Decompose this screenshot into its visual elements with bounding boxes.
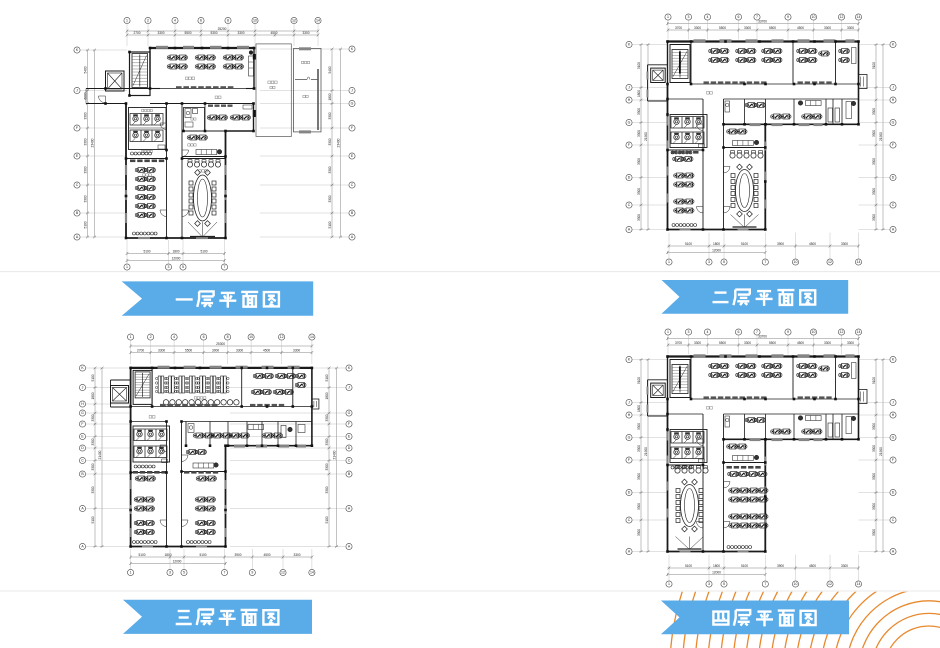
svg-text:12000: 12000 — [172, 257, 181, 261]
svg-text:9: 9 — [251, 571, 253, 575]
svg-text:3900: 3900 — [777, 564, 784, 568]
svg-text:10: 10 — [812, 330, 816, 334]
svg-text:3300: 3300 — [84, 138, 88, 145]
svg-text:F: F — [76, 126, 78, 130]
svg-text:1: 1 — [667, 330, 669, 334]
svg-text:3300: 3300 — [637, 503, 641, 510]
svg-text:5500: 5500 — [184, 31, 191, 35]
svg-text:7: 7 — [764, 582, 766, 586]
svg-text:3300: 3300 — [158, 349, 165, 353]
svg-text:3300: 3300 — [872, 158, 876, 165]
svg-text:3300: 3300 — [872, 423, 876, 430]
svg-text:5100: 5100 — [325, 516, 329, 523]
svg-text:1800: 1800 — [91, 392, 95, 399]
svg-text:5100: 5100 — [741, 564, 748, 568]
svg-text:J: J — [82, 386, 84, 390]
svg-text:3: 3 — [688, 15, 690, 19]
svg-text:3: 3 — [708, 260, 710, 264]
svg-text:F: F — [628, 458, 630, 462]
svg-text:6: 6 — [738, 330, 740, 334]
svg-text:21400: 21400 — [98, 450, 102, 459]
svg-text:5500: 5500 — [719, 26, 726, 30]
svg-text:3700: 3700 — [675, 26, 682, 30]
svg-text:1: 1 — [126, 265, 128, 269]
svg-text:25200: 25200 — [218, 27, 227, 31]
svg-text:3300: 3300 — [694, 26, 701, 30]
svg-text:5100: 5100 — [741, 242, 748, 246]
svg-text:3300: 3300 — [637, 158, 641, 165]
svg-text:10: 10 — [812, 15, 816, 19]
svg-text:F: F — [892, 458, 894, 462]
svg-text:J: J — [628, 86, 630, 90]
svg-text:25300: 25300 — [216, 342, 225, 346]
svg-text:J: J — [348, 386, 350, 390]
svg-text:5300: 5300 — [210, 31, 217, 35]
svg-text:23400: 23400 — [337, 138, 341, 147]
svg-text:12: 12 — [281, 571, 285, 575]
svg-text:21900: 21900 — [879, 447, 883, 456]
svg-text:21900: 21900 — [644, 447, 648, 456]
svg-text:4: 4 — [707, 330, 709, 334]
svg-text:3300: 3300 — [328, 195, 332, 202]
svg-text:1: 1 — [667, 15, 669, 19]
svg-text:12: 12 — [828, 260, 832, 264]
svg-text:3: 3 — [169, 571, 171, 575]
svg-text:4: 4 — [173, 335, 175, 339]
svg-text:3900: 3900 — [234, 553, 241, 557]
svg-text:7: 7 — [756, 330, 758, 334]
svg-text:3000: 3000 — [212, 349, 219, 353]
svg-text:3700: 3700 — [675, 341, 682, 345]
svg-text:4500: 4500 — [809, 564, 816, 568]
svg-text:3300: 3300 — [302, 31, 309, 35]
svg-text:3300: 3300 — [637, 445, 641, 452]
svg-text:3300: 3300 — [293, 553, 300, 557]
svg-text:3300: 3300 — [325, 463, 329, 470]
svg-text:5400: 5400 — [84, 66, 88, 73]
svg-text:3300: 3300 — [872, 503, 876, 510]
svg-text:4500: 4500 — [797, 341, 804, 345]
svg-text:5100: 5100 — [685, 564, 692, 568]
svg-text:1800: 1800 — [713, 242, 720, 246]
svg-text:14: 14 — [857, 15, 861, 19]
svg-text:3300: 3300 — [91, 486, 95, 493]
svg-text:21900: 21900 — [644, 132, 648, 141]
svg-text:3300: 3300 — [824, 26, 831, 30]
svg-text:4: 4 — [707, 15, 709, 19]
svg-text:12: 12 — [840, 15, 844, 19]
svg-text:21900: 21900 — [879, 132, 883, 141]
svg-text:3300: 3300 — [824, 341, 831, 345]
svg-text:1800: 1800 — [328, 93, 332, 100]
svg-text:21400: 21400 — [333, 450, 337, 459]
svg-text:G: G — [628, 121, 631, 125]
svg-text:5100: 5100 — [91, 516, 95, 523]
svg-text:33700: 33700 — [758, 335, 767, 339]
svg-text:3300: 3300 — [325, 414, 329, 421]
svg-text:5100: 5100 — [872, 62, 876, 69]
svg-text:3300: 3300 — [157, 31, 164, 35]
svg-text:3300: 3300 — [84, 112, 88, 119]
svg-text:33700: 33700 — [758, 20, 767, 24]
svg-text:3300: 3300 — [637, 214, 641, 221]
svg-text:5100: 5100 — [138, 553, 145, 557]
svg-text:3300: 3300 — [91, 463, 95, 470]
svg-text:5500: 5500 — [185, 349, 192, 353]
svg-text:3300: 3300 — [872, 108, 876, 115]
svg-text:14: 14 — [857, 582, 861, 586]
svg-text:3300: 3300 — [293, 349, 300, 353]
svg-text:5100: 5100 — [685, 242, 692, 246]
svg-text:5: 5 — [183, 571, 185, 575]
svg-text:3300: 3300 — [872, 130, 876, 137]
svg-text:3300: 3300 — [637, 529, 641, 536]
svg-text:F: F — [351, 126, 353, 130]
svg-text:4500: 4500 — [797, 26, 804, 30]
svg-text:14: 14 — [857, 330, 861, 334]
svg-text:F: F — [892, 143, 894, 147]
svg-text:G: G — [892, 121, 895, 125]
svg-text:14: 14 — [857, 260, 861, 264]
svg-text:1800: 1800 — [637, 90, 641, 97]
svg-text:3300: 3300 — [872, 529, 876, 536]
svg-text:3300: 3300 — [637, 108, 641, 115]
svg-text:3300: 3300 — [694, 341, 701, 345]
svg-text:3300: 3300 — [637, 188, 641, 195]
svg-text:3300: 3300 — [744, 26, 751, 30]
svg-text:10: 10 — [794, 260, 798, 264]
svg-text:10: 10 — [794, 582, 798, 586]
svg-text:9: 9 — [787, 15, 789, 19]
svg-text:J: J — [351, 89, 353, 93]
svg-text:5100: 5100 — [143, 250, 150, 254]
svg-text:3300: 3300 — [328, 138, 332, 145]
svg-text:3300: 3300 — [637, 130, 641, 137]
svg-text:1: 1 — [668, 582, 670, 586]
svg-text:J: J — [628, 401, 630, 405]
svg-text:1800: 1800 — [172, 250, 179, 254]
svg-text:12000: 12000 — [712, 249, 721, 253]
svg-text:3300: 3300 — [637, 423, 641, 430]
svg-text:14: 14 — [310, 335, 314, 339]
svg-text:12: 12 — [828, 582, 832, 586]
svg-text:6000: 6000 — [84, 92, 88, 99]
svg-text:2700: 2700 — [133, 31, 140, 35]
svg-text:4500: 4500 — [263, 553, 270, 557]
svg-text:J: J — [892, 86, 894, 90]
svg-text:F: F — [628, 143, 630, 147]
svg-text:F: F — [348, 422, 350, 426]
svg-text:5100: 5100 — [325, 374, 329, 381]
svg-text:5400: 5400 — [328, 66, 332, 73]
svg-text:3300: 3300 — [84, 195, 88, 202]
svg-text:2: 2 — [150, 335, 152, 339]
svg-text:12: 12 — [840, 330, 844, 334]
svg-text:5: 5 — [723, 582, 725, 586]
svg-text:8: 8 — [227, 335, 229, 339]
svg-text:3300: 3300 — [91, 414, 95, 421]
svg-text:5: 5 — [723, 260, 725, 264]
svg-text:J: J — [76, 89, 78, 93]
svg-text:3300: 3300 — [841, 242, 848, 246]
svg-text:7: 7 — [756, 15, 758, 19]
svg-text:1: 1 — [130, 335, 132, 339]
svg-text:3300: 3300 — [872, 188, 876, 195]
svg-text:1800: 1800 — [164, 553, 171, 557]
svg-text:3300: 3300 — [237, 31, 244, 35]
svg-text:23400: 23400 — [91, 138, 95, 147]
svg-text:5100: 5100 — [91, 374, 95, 381]
svg-text:9: 9 — [787, 330, 789, 334]
svg-text:3300: 3300 — [91, 438, 95, 445]
svg-text:3900: 3900 — [777, 242, 784, 246]
svg-text:5100: 5100 — [637, 62, 641, 69]
svg-text:5100: 5100 — [199, 553, 206, 557]
svg-text:5500: 5500 — [719, 341, 726, 345]
svg-text:5500: 5500 — [769, 26, 776, 30]
svg-text:1: 1 — [130, 571, 132, 575]
svg-text:J: J — [892, 401, 894, 405]
svg-text:3300: 3300 — [325, 486, 329, 493]
svg-text:5100: 5100 — [200, 250, 207, 254]
svg-text:3300: 3300 — [744, 341, 751, 345]
svg-text:10: 10 — [249, 335, 253, 339]
svg-text:14: 14 — [310, 571, 314, 575]
svg-text:3: 3 — [688, 330, 690, 334]
svg-text:4500: 4500 — [270, 31, 277, 35]
svg-text:12000: 12000 — [712, 571, 721, 575]
svg-text:12000: 12000 — [173, 560, 182, 564]
svg-text:3300: 3300 — [328, 166, 332, 173]
svg-text:5100: 5100 — [872, 377, 876, 384]
svg-text:4500: 4500 — [809, 242, 816, 246]
svg-text:6: 6 — [203, 335, 205, 339]
svg-text:3300: 3300 — [847, 26, 854, 30]
svg-text:5500: 5500 — [769, 341, 776, 345]
svg-text:G: G — [892, 436, 895, 440]
svg-text:3300: 3300 — [847, 341, 854, 345]
svg-text:1800: 1800 — [637, 405, 641, 412]
svg-text:1: 1 — [668, 260, 670, 264]
svg-text:7: 7 — [224, 571, 226, 575]
svg-text:F: F — [81, 422, 83, 426]
svg-text:G: G — [351, 102, 354, 106]
svg-text:3: 3 — [708, 582, 710, 586]
svg-text:5100: 5100 — [328, 221, 332, 228]
svg-text:1800: 1800 — [325, 392, 329, 399]
svg-text:G: G — [348, 411, 351, 415]
svg-text:G: G — [628, 436, 631, 440]
svg-text:3300: 3300 — [872, 445, 876, 452]
svg-text:3300: 3300 — [637, 473, 641, 480]
svg-text:5: 5 — [182, 265, 184, 269]
svg-text:6: 6 — [738, 15, 740, 19]
svg-text:3: 3 — [168, 265, 170, 269]
svg-text:5100: 5100 — [84, 221, 88, 228]
svg-text:3300: 3300 — [328, 112, 332, 119]
svg-text:1800: 1800 — [713, 564, 720, 568]
svg-text:3300: 3300 — [84, 166, 88, 173]
svg-text:3300: 3300 — [872, 214, 876, 221]
svg-text:7: 7 — [764, 260, 766, 264]
svg-text:12: 12 — [280, 335, 284, 339]
svg-text:G: G — [81, 411, 84, 415]
svg-text:3300: 3300 — [841, 564, 848, 568]
svg-text:7: 7 — [224, 265, 226, 269]
svg-text:3300: 3300 — [236, 349, 243, 353]
svg-text:3300: 3300 — [325, 438, 329, 445]
svg-text:3300: 3300 — [872, 473, 876, 480]
svg-text:4500: 4500 — [263, 349, 270, 353]
svg-text:5100: 5100 — [637, 377, 641, 384]
svg-text:2700: 2700 — [137, 349, 144, 353]
